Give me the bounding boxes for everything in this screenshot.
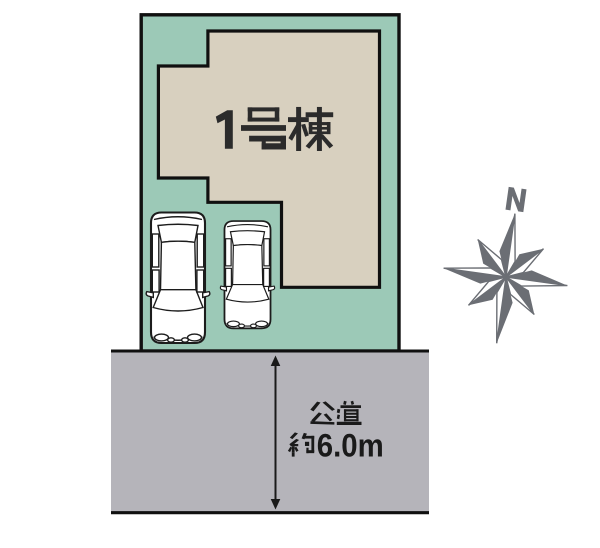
svg-text:6.0m: 6.0m <box>317 427 384 463</box>
